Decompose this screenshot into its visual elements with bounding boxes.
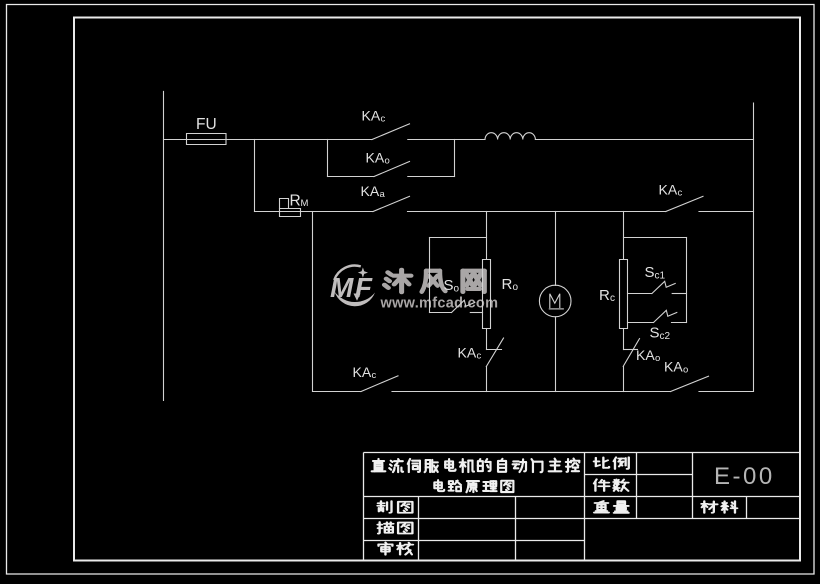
svg-text:o: o	[513, 282, 519, 293]
svg-text:KA: KA	[361, 183, 380, 199]
svg-text:c1: c1	[655, 271, 666, 282]
svg-text:www.mfcad.com: www.mfcad.com	[380, 296, 499, 312]
svg-text:M: M	[301, 198, 309, 209]
svg-text:c2: c2	[660, 331, 671, 342]
svg-text:KA: KA	[458, 345, 477, 361]
svg-text:S: S	[650, 325, 660, 342]
svg-text:KA: KA	[366, 150, 385, 166]
svg-text:c: c	[372, 370, 377, 381]
svg-text:KA: KA	[636, 347, 655, 363]
svg-text:a: a	[380, 189, 386, 200]
svg-text:c: c	[381, 114, 386, 125]
svg-text:FU: FU	[196, 116, 217, 133]
svg-text:o: o	[655, 353, 660, 364]
svg-text:o: o	[683, 365, 688, 376]
svg-text:o: o	[454, 284, 460, 295]
svg-text:KA: KA	[664, 359, 683, 375]
svg-text:c: c	[610, 293, 615, 304]
svg-text:E-00: E-00	[714, 463, 775, 490]
svg-text:MF: MF	[330, 272, 373, 303]
svg-text:KA: KA	[362, 108, 381, 124]
svg-text:c: c	[477, 351, 482, 362]
svg-text:R: R	[599, 287, 610, 304]
svg-text:c: c	[678, 188, 683, 199]
svg-text:R: R	[290, 192, 301, 209]
svg-text:KA: KA	[659, 182, 678, 198]
svg-text:R: R	[502, 276, 513, 293]
svg-text:S: S	[645, 264, 655, 281]
svg-text:S: S	[444, 277, 454, 294]
svg-text:o: o	[385, 156, 390, 167]
svg-text:KA: KA	[353, 364, 372, 380]
